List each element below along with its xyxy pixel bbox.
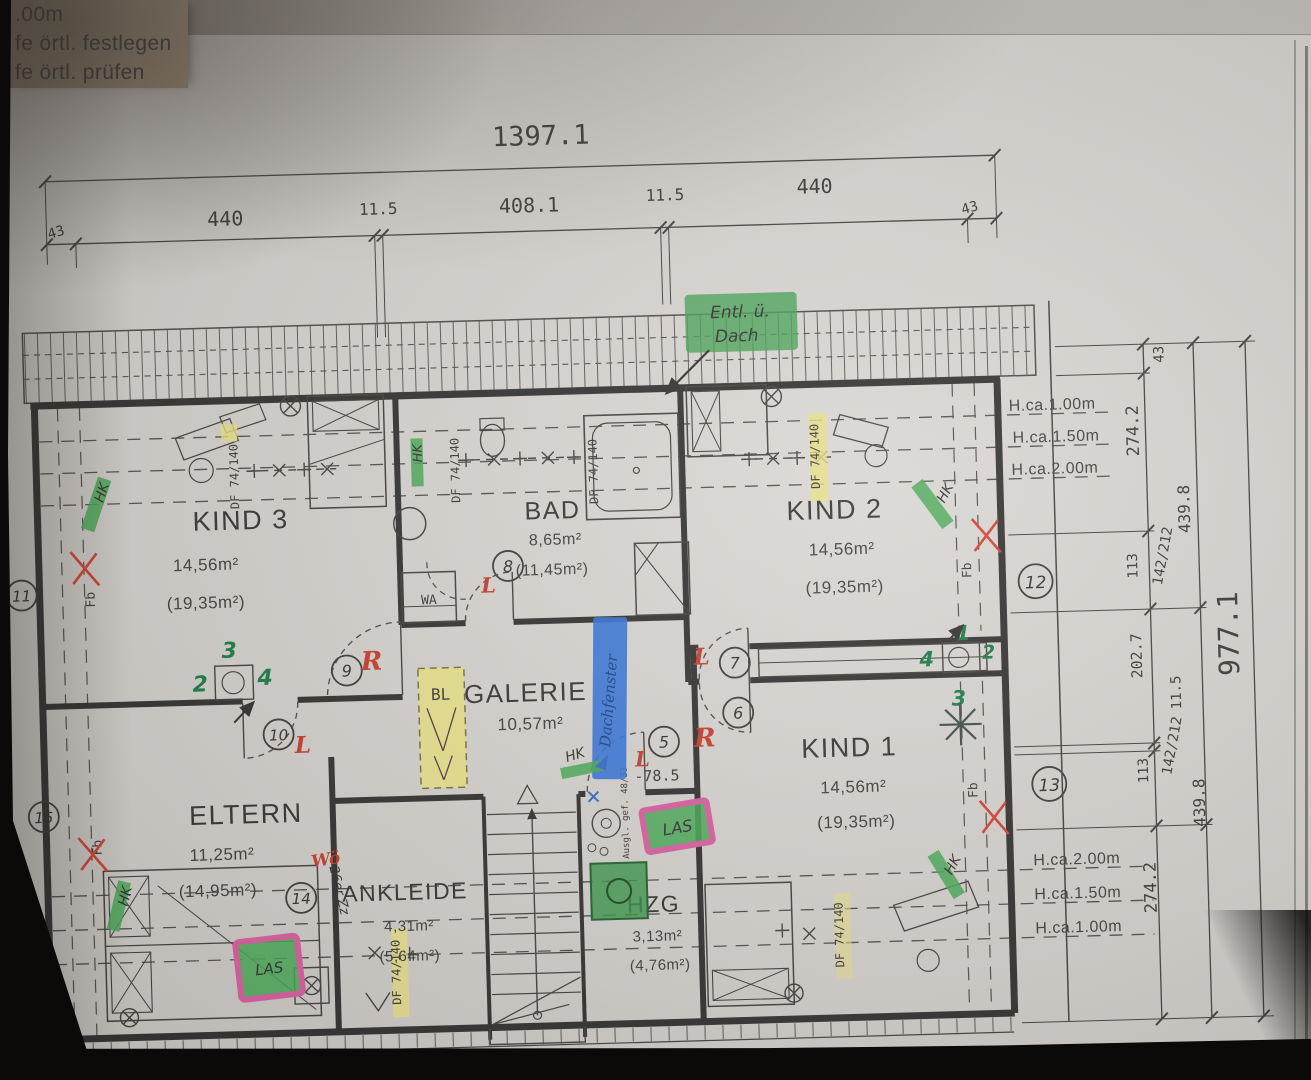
circle-15: 15	[34, 809, 54, 828]
circle-9: 9	[342, 661, 353, 680]
green-1-right: 1	[955, 621, 970, 645]
blue-x	[588, 792, 598, 802]
hline-bot-150: H.ca.1.50m	[1034, 884, 1121, 903]
basin-corridor	[215, 665, 254, 700]
df-label-bad-left: DF 74/140	[447, 438, 463, 503]
circle-11: 11	[12, 587, 32, 606]
df-label-kind3: DF 74/140	[226, 444, 242, 509]
hzg-equipment	[592, 809, 621, 838]
room-hzg-area: 3,13m²	[632, 927, 682, 945]
rdim-2027: 202.7	[1127, 633, 1146, 679]
rdim-142212-bot: 142/212	[1159, 715, 1185, 776]
dim-seg-43-left: 43	[46, 223, 67, 243]
green-2-right: 2	[982, 641, 996, 663]
circle-8: 8	[503, 557, 514, 576]
pen-arrow-left	[234, 702, 255, 723]
room-kind3-name: KIND 3	[192, 504, 289, 537]
stairs-up-icon	[517, 785, 537, 804]
green-4-right: 4	[918, 647, 934, 671]
dim-seg-4081: 408.1	[499, 192, 560, 218]
room-eltern-gross: (14,95m²)	[179, 880, 258, 901]
room-kind1-area: 14,56m²	[820, 776, 886, 797]
room-bad-name: BAD	[524, 496, 581, 526]
room-eltern-area: 11,25m²	[189, 844, 254, 865]
bl-box: BL	[418, 667, 467, 788]
circle-5: 5	[659, 733, 670, 752]
dim-total-width: 1397.1	[492, 120, 590, 154]
rdim-4398-bot: 439.8	[1189, 778, 1209, 827]
dim-seg-440-left: 440	[207, 206, 244, 231]
room-bad-area: 8,65m²	[529, 531, 582, 549]
las-box-hzg: LAS	[641, 800, 713, 852]
circle-7: 7	[729, 653, 741, 672]
blue-marker-strip: Dachfenster	[592, 617, 627, 779]
rdim-2742-top: 274.2	[1123, 405, 1144, 457]
room-kind1-name: KIND 1	[801, 731, 898, 764]
circle-13: 13	[1038, 776, 1060, 797]
dim-seg-115-left: 11.5	[359, 199, 398, 219]
rdim-2742-bot: 274.2	[1141, 862, 1162, 914]
df-label-bad-right: DF 74/140	[585, 439, 601, 504]
room-kind1-gross: (19,35m²)	[817, 811, 896, 832]
stairs-walk-line	[532, 809, 538, 1015]
bl-label: BL	[431, 685, 451, 705]
dim-seg-43-right: 43	[960, 198, 981, 218]
room-kind3-area: 14,56m²	[173, 554, 239, 575]
room-galerie-area: 10,57m²	[497, 713, 563, 734]
circle-10: 10	[269, 726, 289, 745]
green-3-left: 3	[221, 639, 237, 664]
room-kind2-area: 14,56m²	[808, 539, 874, 560]
room-ankleide-gross: (5,64m²)	[379, 947, 440, 966]
room-kind2-gross: (19,35m²)	[805, 576, 884, 597]
fb-right-bottom: Fb	[966, 782, 981, 798]
hline-top-150: H.ca.1.50m	[1012, 427, 1099, 446]
red-l-4: L	[634, 746, 650, 771]
hk-galerie: HK	[563, 744, 588, 765]
red-l-3: L	[480, 572, 496, 597]
las-label-eltern: LAS	[254, 958, 284, 979]
room-hzg-gross: (4,76m²)	[630, 956, 691, 975]
las-box-eltern: LAS	[235, 935, 303, 1000]
green-2-left: 2	[192, 672, 208, 697]
room-bad-gross: (11,45m²)	[516, 561, 589, 580]
rdim-113-top: 113	[1125, 553, 1142, 579]
vent-note-line1: Entl. ü.	[710, 302, 770, 324]
dim-seg-440-right: 440	[796, 174, 833, 199]
circle-6: 6	[733, 703, 744, 722]
green-4-left: 4	[256, 666, 273, 691]
rdim-113-bot: 113	[1136, 758, 1153, 784]
room-ankleide-name: ANKLEIDE	[342, 877, 468, 907]
fb-right-top: Fb	[960, 562, 975, 578]
red-l-1: L	[293, 732, 311, 759]
red-r-2: R	[693, 723, 716, 754]
red-r-1: R	[359, 647, 382, 678]
vent-note-line2: Dach	[715, 326, 759, 347]
green-3-right: 3	[951, 686, 966, 710]
wa-label: WA	[421, 593, 437, 608]
hline-bot-200: H.ca.2.00m	[1033, 850, 1120, 869]
star-doodle	[939, 703, 982, 746]
rdim-142212-top: 142/212	[1150, 525, 1176, 586]
hline-top-200: H.ca.2.00m	[1011, 459, 1098, 478]
window-kind1	[775, 923, 815, 941]
staircase	[486, 784, 582, 1024]
room-kind2-name: KIND 2	[786, 493, 883, 526]
room-galerie-name: GALERIE	[464, 676, 588, 709]
bed-kind2	[686, 385, 768, 457]
floor-plan-drawing: 1397.1 43	[0, 0, 1311, 1080]
circle-14: 14	[291, 890, 311, 909]
rdim-115: 11.5	[1168, 675, 1185, 709]
red-l-2: L	[692, 643, 710, 670]
circle-12: 12	[1025, 573, 1047, 594]
df-label-kind2: DF 74/140	[807, 424, 823, 489]
rdim-total-height: 977.1	[1211, 591, 1246, 676]
hline-bot-100: H.ca.1.00m	[1035, 918, 1122, 937]
boiler-highlight	[590, 862, 648, 920]
fb-left-top: Fb	[84, 592, 99, 608]
toilet	[480, 424, 505, 457]
room-ankleide-area: 4,31m²	[384, 917, 434, 935]
room-kind3-gross: (19,35m²)	[167, 592, 246, 613]
rdim-43: 43	[1151, 346, 1167, 363]
red-door-letters: R L L R L L	[289, 566, 716, 781]
df-label-kind1: DF 74/140	[832, 902, 848, 967]
photo-of-floor-plan: .00m fe örtl. festlegen fe örtl. prüfen …	[0, 0, 1311, 1080]
rdim-4398-top: 439.8	[1174, 485, 1194, 534]
ausgleich-label: Ausgl. gef. 48/33	[620, 767, 633, 859]
dim-seg-115-right: 11.5	[645, 185, 684, 205]
hk-bad: HK	[411, 442, 427, 462]
room-eltern-name: ELTERN	[189, 798, 303, 831]
